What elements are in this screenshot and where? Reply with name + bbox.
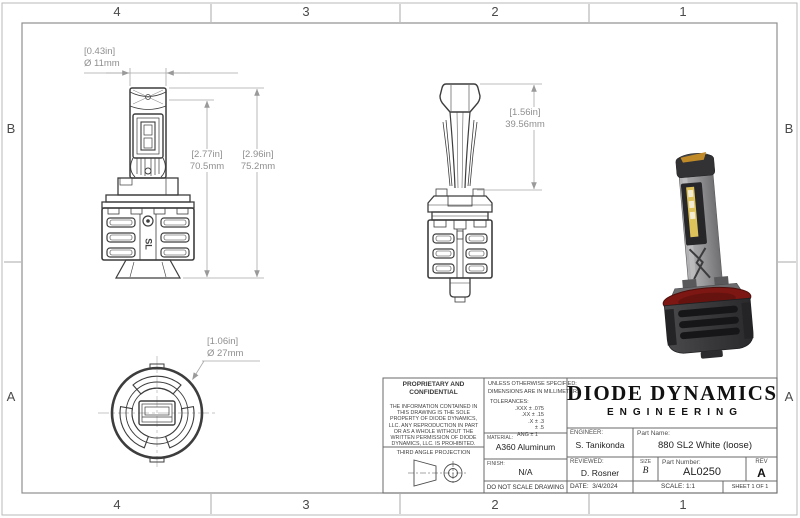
rev-value: A <box>746 466 777 480</box>
material-label: MATERIAL: <box>487 435 513 441</box>
zone-bottom-3: 3 <box>256 497 356 512</box>
zone-left-b: B <box>2 121 20 136</box>
zone-top-2: 2 <box>445 4 545 19</box>
tolerance-3: ± .5 <box>498 425 544 431</box>
zone-top-3: 3 <box>256 4 356 19</box>
part-name-label: Part Name: <box>637 430 670 437</box>
dim-base-diameter: [1.06in] Ø 27mm <box>206 336 244 359</box>
dim-body-height: [2.77in] 70.5mm <box>182 149 232 172</box>
part-name-value: 880 SL2 White (loose) <box>633 440 777 451</box>
zone-right-a: A <box>780 389 798 404</box>
side-view-drawing <box>428 84 492 302</box>
zone-top-4: 4 <box>67 4 167 19</box>
dim-emitter-width: [0.43in] Ø 11mm <box>83 46 121 69</box>
tolerance-2: .X ± .3 <box>498 419 544 425</box>
dim-body-height-in: [2.77in] <box>183 149 231 161</box>
size-value: B <box>633 466 658 476</box>
rev-label: REV <box>746 459 777 465</box>
date-label: DATE: <box>570 483 589 490</box>
units-note-1: UNLESS OTHERWISE SPECIFIED: <box>488 381 577 388</box>
zone-bottom-2: 2 <box>445 497 545 512</box>
zone-right-b: B <box>780 121 798 136</box>
zone-bottom-1: 1 <box>633 497 733 512</box>
material-value: A360 Aluminum <box>484 442 567 452</box>
date-row: DATE: 3/4/2024 <box>570 483 618 490</box>
part-number-label: Part Number: <box>662 459 701 466</box>
dim-overall-height-mm: 75.2mm <box>234 161 282 173</box>
tolerance-0: .XXX ± .075 <box>498 406 544 412</box>
zone-left-a: A <box>2 389 20 404</box>
heatsink-logo-glyph: SL <box>144 238 154 250</box>
projection-label: THIRD ANGLE PROJECTION <box>386 450 481 457</box>
dim-upper-height-in: [1.56in] <box>497 107 553 119</box>
reviewed-value: D. Rosner <box>567 468 633 478</box>
engineer-value: S. Tanikonda <box>567 440 633 450</box>
drawing-sheet: SL <box>0 0 800 518</box>
sheet-note: SHEET 1 OF 1 <box>723 484 777 490</box>
dim-overall-height-in: [2.96in] <box>234 149 282 161</box>
company-subtitle: ENGINEERING <box>567 407 777 418</box>
date-value: 3/4/2024 <box>592 483 617 490</box>
reviewed-label: REVIEWED: <box>570 459 604 465</box>
isometric-render <box>650 149 756 361</box>
proprietary-body: THE INFORMATION CONTAINED IN THIS DRAWIN… <box>386 404 481 447</box>
finish-value: N/A <box>484 467 567 477</box>
zone-top-1: 1 <box>633 4 733 19</box>
dim-upper-height-mm: 39.56mm <box>497 119 553 131</box>
zone-bottom-4: 4 <box>67 497 167 512</box>
dim-base-diameter-mm: Ø 27mm <box>207 348 243 360</box>
company-name: DIODE DYNAMICS <box>567 381 777 406</box>
tolerance-1: .XX ± .15 <box>498 412 544 418</box>
dim-upper-height: [1.56in] 39.56mm <box>496 107 554 130</box>
scale-note: SCALE: 1:1 <box>633 483 723 490</box>
dim-base-diameter-in: [1.06in] <box>207 336 243 348</box>
dim-overall-height: [2.96in] 75.2mm <box>233 149 283 172</box>
dim-emitter-width-in: [0.43in] <box>84 46 120 58</box>
proprietary-title: PROPRIETARY AND CONFIDENTIAL <box>386 381 481 396</box>
engineer-label: ENGINEER: <box>570 430 603 436</box>
dim-emitter-width-mm: Ø 11mm <box>84 58 120 70</box>
no-scale-note: DO NOT SCALE DRAWING <box>484 484 567 491</box>
third-angle-projection-icon <box>408 460 466 486</box>
size-label: SIZE <box>633 459 658 465</box>
dim-body-height-mm: 70.5mm <box>183 161 231 173</box>
bottom-view-drawing <box>98 356 218 470</box>
part-number-value: AL0250 <box>658 466 746 478</box>
